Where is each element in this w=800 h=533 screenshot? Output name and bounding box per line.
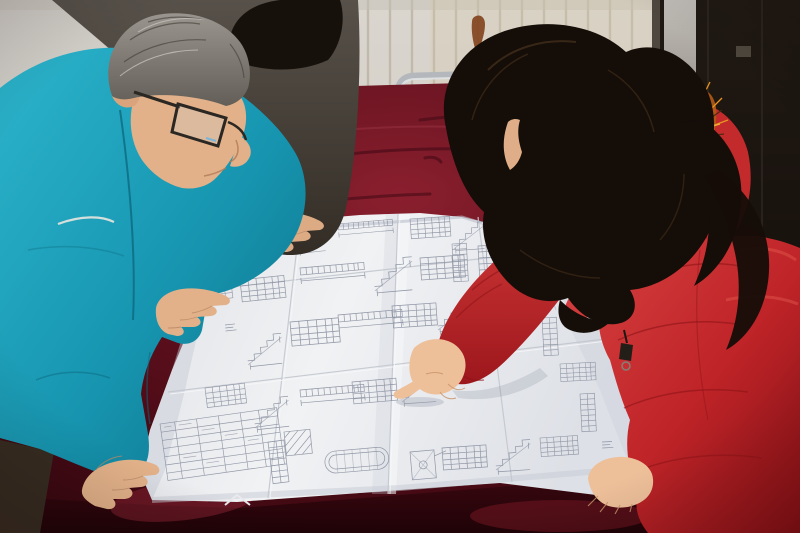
photo-recreation bbox=[0, 0, 800, 533]
vignette bbox=[0, 0, 800, 533]
photo-stage bbox=[0, 0, 800, 533]
